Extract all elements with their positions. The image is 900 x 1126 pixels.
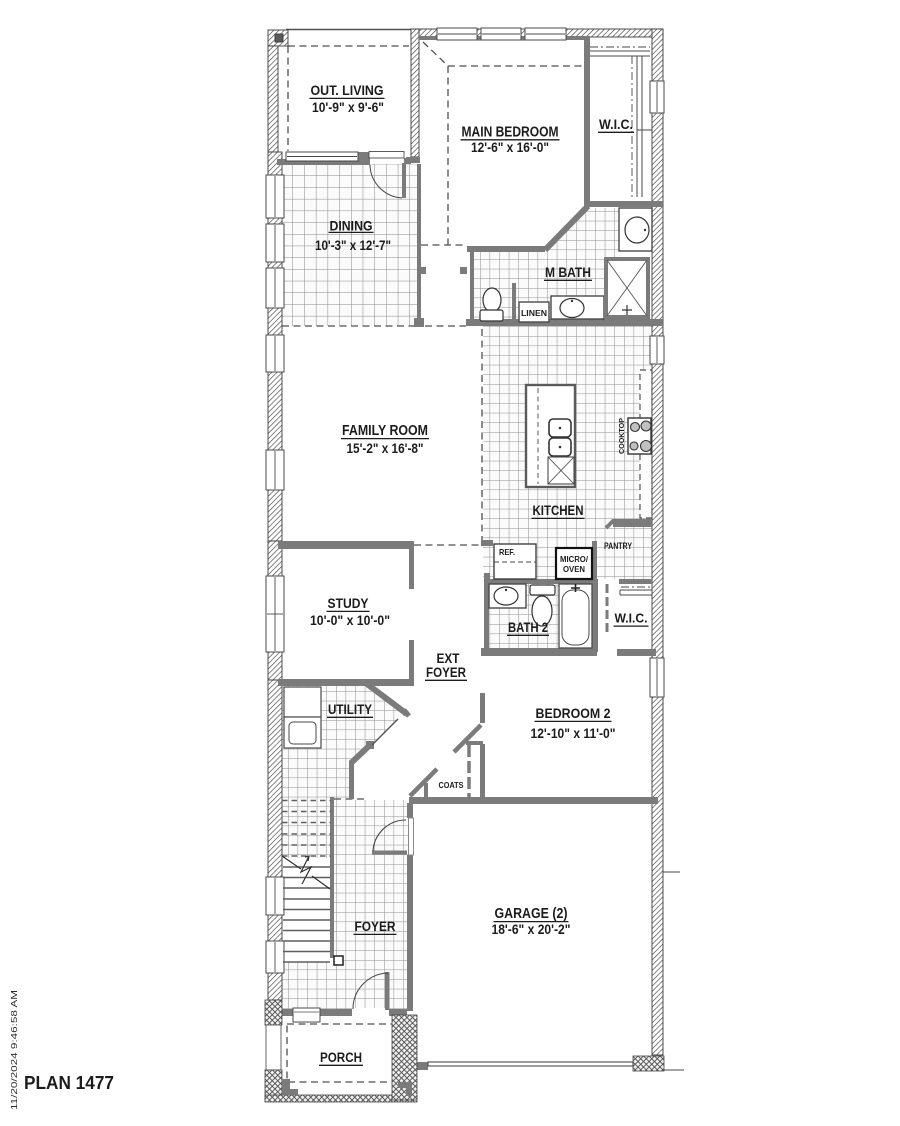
svg-text:10'-3" x 12'-7": 10'-3" x 12'-7" [315,238,391,253]
svg-text:OVEN: OVEN [563,565,585,574]
svg-text:FOYER: FOYER [355,918,396,934]
svg-text:PORCH: PORCH [320,1050,362,1065]
svg-text:MICRO/: MICRO/ [560,555,589,564]
svg-text:BATH 2: BATH 2 [508,620,548,635]
svg-text:15'-2" x 16'-8": 15'-2" x 16'-8" [347,441,424,456]
svg-text:FOYER: FOYER [426,665,466,680]
svg-text:W.I.C.: W.I.C. [615,611,648,626]
svg-text:MAIN BEDROOM: MAIN BEDROOM [462,124,559,140]
svg-text:M BATH: M BATH [545,265,591,280]
svg-text:EXT: EXT [437,651,461,666]
svg-text:LINEN: LINEN [521,309,547,318]
svg-text:KITCHEN: KITCHEN [533,502,584,518]
svg-text:12'-6" x 16'-0": 12'-6" x 16'-0" [471,140,549,155]
svg-text:REF.: REF. [499,547,515,557]
svg-text:OUT. LIVING: OUT. LIVING [311,82,384,98]
svg-text:12'-10" x 11'-0": 12'-10" x 11'-0" [531,726,616,741]
svg-text:COATS: COATS [439,781,465,790]
svg-text:BEDROOM 2: BEDROOM 2 [536,705,611,721]
svg-text:STUDY: STUDY [328,595,370,611]
svg-text:DINING: DINING [330,218,373,234]
svg-text:18'-6" x 20'-2": 18'-6" x 20'-2" [492,922,571,937]
svg-text:10'-9" x 9'-6": 10'-9" x 9'-6" [312,100,384,115]
svg-text:PLAN 1477: PLAN 1477 [24,1073,114,1093]
svg-text:GARAGE (2): GARAGE (2) [495,906,568,922]
svg-text:W.I.C.: W.I.C. [599,117,633,132]
svg-text:10'-0" x 10'-0": 10'-0" x 10'-0" [310,613,390,628]
svg-text:11/20/2024 9:46:58 AM: 11/20/2024 9:46:58 AM [9,990,19,1110]
svg-text:UTILITY: UTILITY [328,702,372,717]
svg-text:FAMILY ROOM: FAMILY ROOM [342,423,428,439]
svg-text:COOKTOP: COOKTOP [617,418,626,454]
svg-text:PANTRY: PANTRY [604,541,632,551]
